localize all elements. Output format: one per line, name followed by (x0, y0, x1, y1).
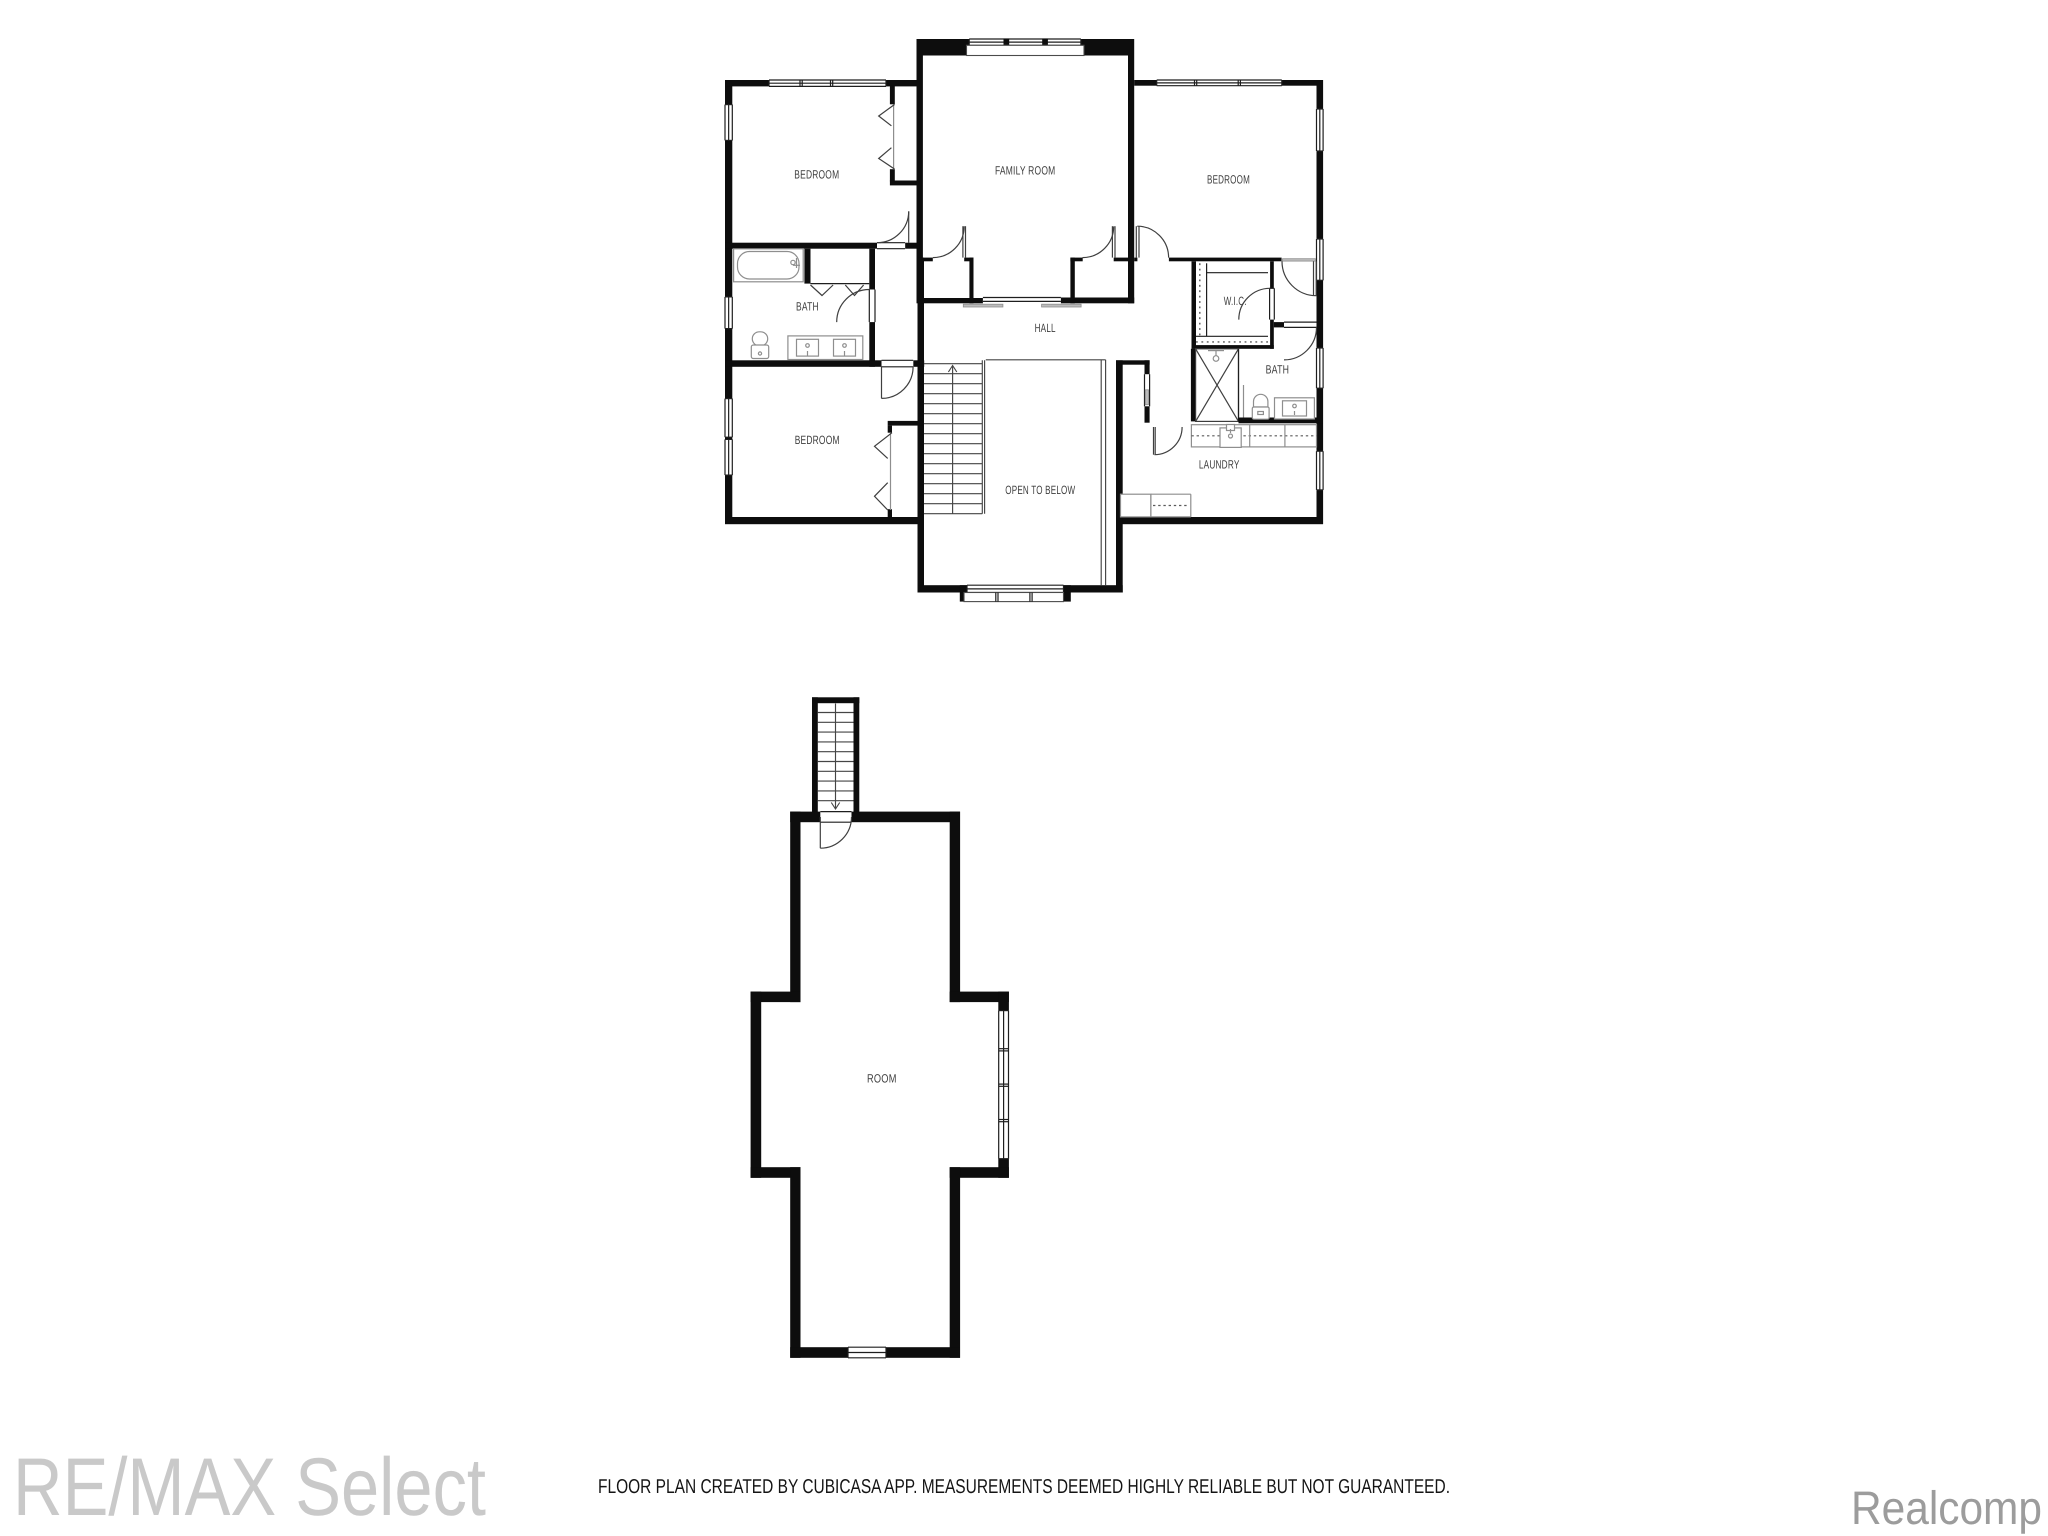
svg-text:RE/MAX Select: RE/MAX Select (13, 1442, 486, 1533)
svg-text:LAUNDRY: LAUNDRY (1199, 458, 1240, 472)
svg-text:BATH: BATH (796, 300, 819, 314)
svg-text:OPEN TO BELOW: OPEN TO BELOW (1005, 483, 1075, 497)
svg-text:BEDROOM: BEDROOM (794, 168, 839, 182)
svg-text:FAMILY ROOM: FAMILY ROOM (995, 163, 1056, 177)
svg-text:ROOM: ROOM (867, 1072, 897, 1086)
svg-text:BEDROOM: BEDROOM (795, 433, 840, 447)
svg-text:W.I.C.: W.I.C. (1224, 294, 1247, 308)
svg-text:BATH: BATH (1266, 362, 1290, 376)
svg-text:FLOOR PLAN CREATED BY CUBICASA: FLOOR PLAN CREATED BY CUBICASA APP. MEAS… (598, 1476, 1450, 1498)
svg-text:BEDROOM: BEDROOM (1207, 173, 1250, 187)
svg-text:Realcomp: Realcomp (1851, 1481, 2042, 1534)
svg-text:HALL: HALL (1035, 321, 1056, 335)
